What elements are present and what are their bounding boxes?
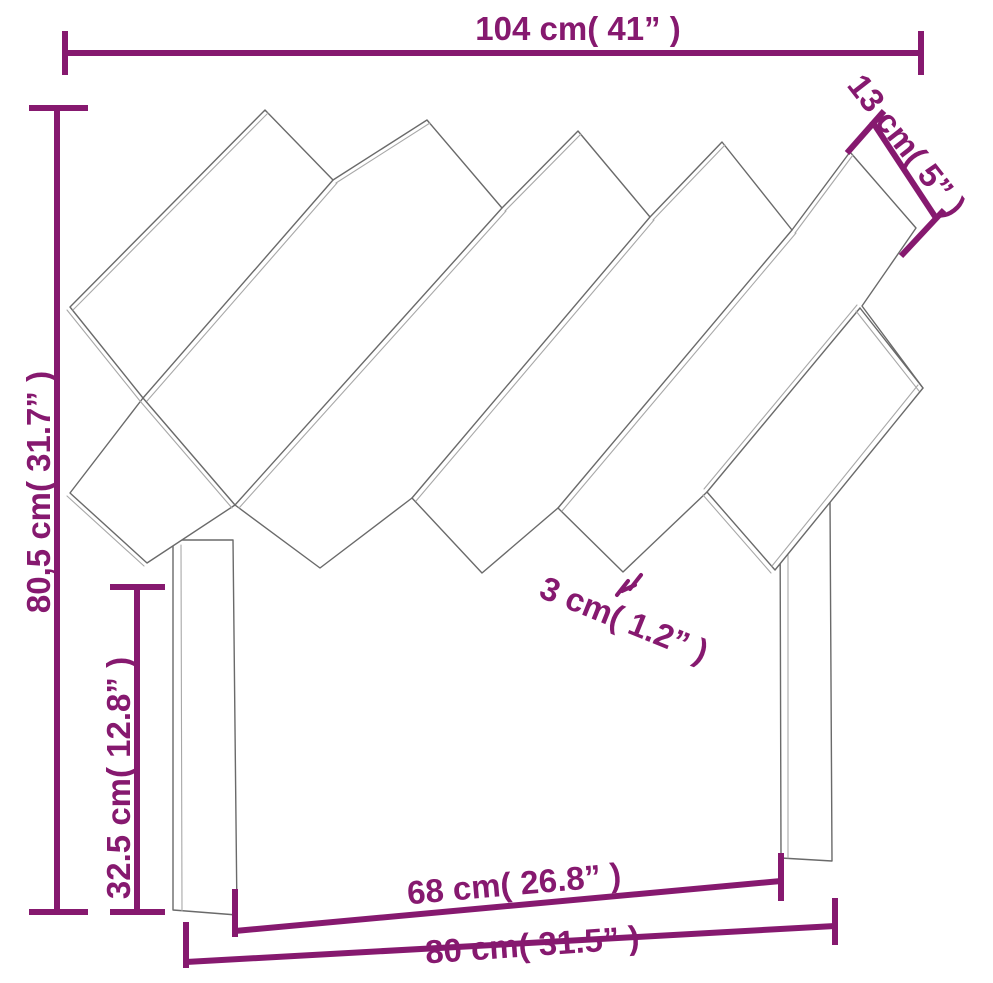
top-width-label: 104 cm( 41” ) — [475, 10, 680, 47]
total-height-label: 80,5 cm( 31.7” ) — [20, 371, 57, 613]
leg-height-label: 32.5 cm( 12.8” ) — [100, 657, 137, 899]
headboard-legs — [173, 500, 832, 915]
headboard-drawing-canvas: 104 cm( 41” ) 13 cm( 5” ) 80,5 cm( 31.7”… — [0, 0, 993, 983]
dim-slat-thickness-marker — [617, 575, 641, 595]
base-width-label: 80 cm( 31.5” ) — [424, 919, 641, 971]
dimension-diagram: 104 cm( 41” ) 13 cm( 5” ) 80,5 cm( 31.7”… — [0, 0, 993, 983]
slat-assembly-silhouette — [70, 110, 923, 573]
left-leg — [173, 540, 237, 915]
headboard-slats — [67, 110, 923, 573]
